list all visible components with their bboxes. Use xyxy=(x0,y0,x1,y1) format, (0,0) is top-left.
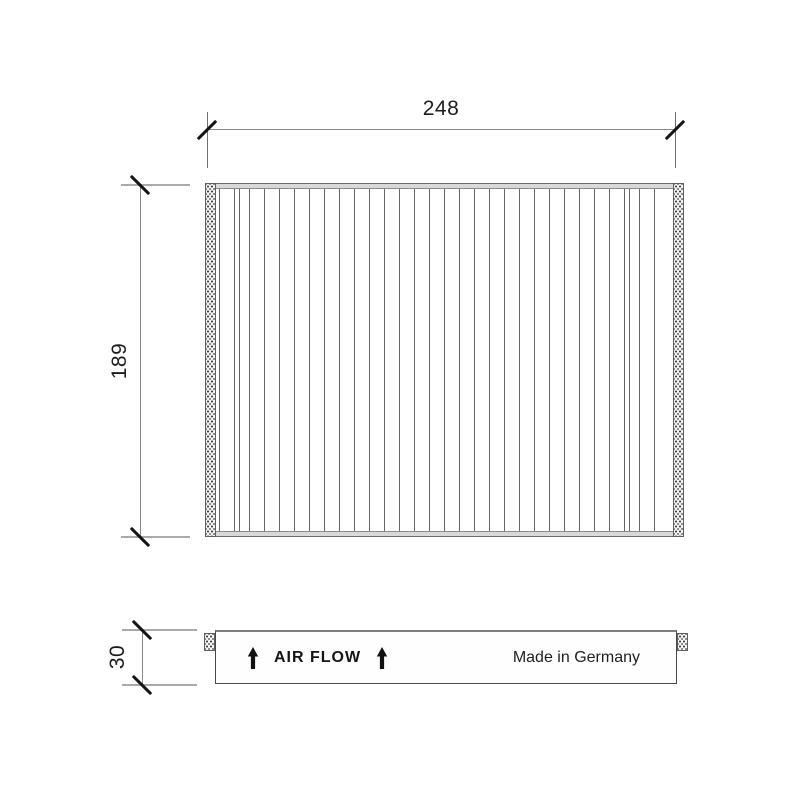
filter-top-view xyxy=(205,183,684,537)
gasket-left xyxy=(205,183,216,537)
gasket-tab-left xyxy=(204,633,215,651)
dimension-line-width xyxy=(207,129,676,130)
dimension-line-height xyxy=(140,185,141,537)
pleat-line xyxy=(339,189,340,531)
extension-line-bottom xyxy=(122,684,197,686)
pleat-line xyxy=(504,189,505,531)
pleat-line xyxy=(369,189,370,531)
pleat-line xyxy=(579,189,580,531)
filter-side-view: AIR FLOW Made in Germany xyxy=(215,630,677,684)
pleat-line xyxy=(234,189,235,531)
pleat-line xyxy=(264,189,265,531)
extension-line-top xyxy=(121,184,190,186)
pleat-line xyxy=(354,189,355,531)
pleat-line xyxy=(324,189,325,531)
pleat-line xyxy=(309,189,310,531)
pleat-line xyxy=(219,189,220,531)
airflow-group: AIR FLOW xyxy=(247,632,388,683)
pleat-line xyxy=(444,189,445,531)
drawing-canvas: 248 189 30 AIR FLOW xyxy=(0,0,800,800)
pleat-line xyxy=(414,189,415,531)
dimension-height-label: 189 xyxy=(108,343,132,380)
pleat-line xyxy=(249,189,250,531)
made-in-germany-label: Made in Germany xyxy=(513,632,640,683)
extension-line-top xyxy=(122,629,197,631)
pleat-line xyxy=(629,189,630,531)
gasket-tab-right xyxy=(677,633,688,651)
dimension-width-label: 248 xyxy=(423,97,460,121)
pleat-line xyxy=(654,189,655,531)
up-arrow-icon xyxy=(376,647,388,669)
dimension-depth-label: 30 xyxy=(106,645,130,669)
extension-line-right xyxy=(675,112,676,168)
dimension-line-depth xyxy=(142,630,143,685)
extension-line-left xyxy=(207,112,208,168)
pleat-line xyxy=(279,189,280,531)
pleat-line xyxy=(624,189,625,531)
gasket-right xyxy=(673,183,684,537)
up-arrow-icon xyxy=(247,647,259,669)
pleat-line xyxy=(609,189,610,531)
pleat-line xyxy=(549,189,550,531)
airflow-label: AIR FLOW xyxy=(274,649,361,667)
frame-edge-bottom xyxy=(216,531,673,537)
pleat-line xyxy=(459,189,460,531)
pleat-line xyxy=(239,189,240,531)
pleat-line xyxy=(399,189,400,531)
pleat-line xyxy=(564,189,565,531)
pleat-line xyxy=(639,189,640,531)
pleat-line xyxy=(294,189,295,531)
pleat-line xyxy=(534,189,535,531)
pleat-area xyxy=(216,189,673,531)
pleat-line xyxy=(384,189,385,531)
pleat-line xyxy=(594,189,595,531)
pleat-line xyxy=(429,189,430,531)
pleat-line xyxy=(519,189,520,531)
pleat-line xyxy=(489,189,490,531)
extension-line-bottom xyxy=(121,536,190,538)
pleat-line xyxy=(474,189,475,531)
